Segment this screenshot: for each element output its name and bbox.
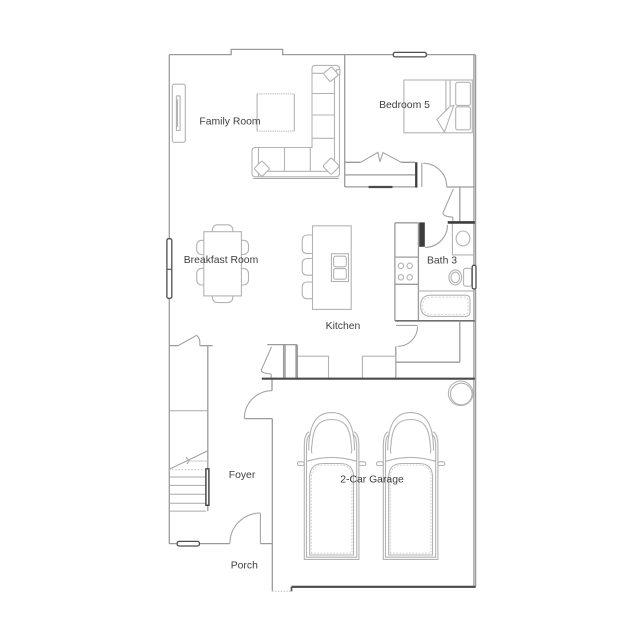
svg-text:Foyer: Foyer [229, 470, 256, 481]
svg-text:Bedroom 5: Bedroom 5 [379, 100, 430, 111]
svg-text:Kitchen: Kitchen [326, 321, 361, 332]
svg-text:Family Room: Family Room [199, 117, 260, 128]
svg-text:Porch: Porch [231, 560, 258, 571]
svg-text:2-Car Garage: 2-Car Garage [340, 474, 404, 485]
svg-text:Breakfast Room: Breakfast Room [184, 255, 259, 266]
svg-text:Bath 3: Bath 3 [427, 256, 457, 267]
